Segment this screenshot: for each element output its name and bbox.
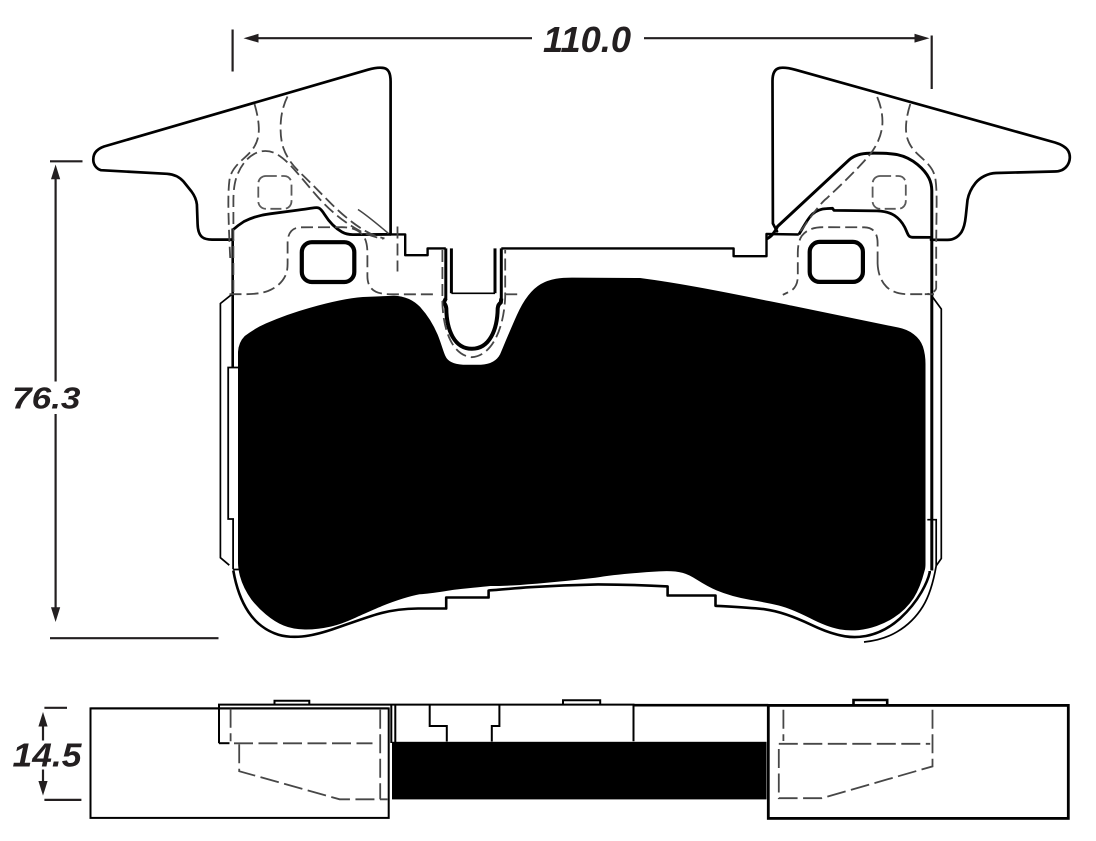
svg-text:14.5: 14.5	[13, 737, 83, 774]
svg-text:110.0: 110.0	[543, 19, 631, 60]
svg-text:76.3: 76.3	[12, 381, 81, 415]
